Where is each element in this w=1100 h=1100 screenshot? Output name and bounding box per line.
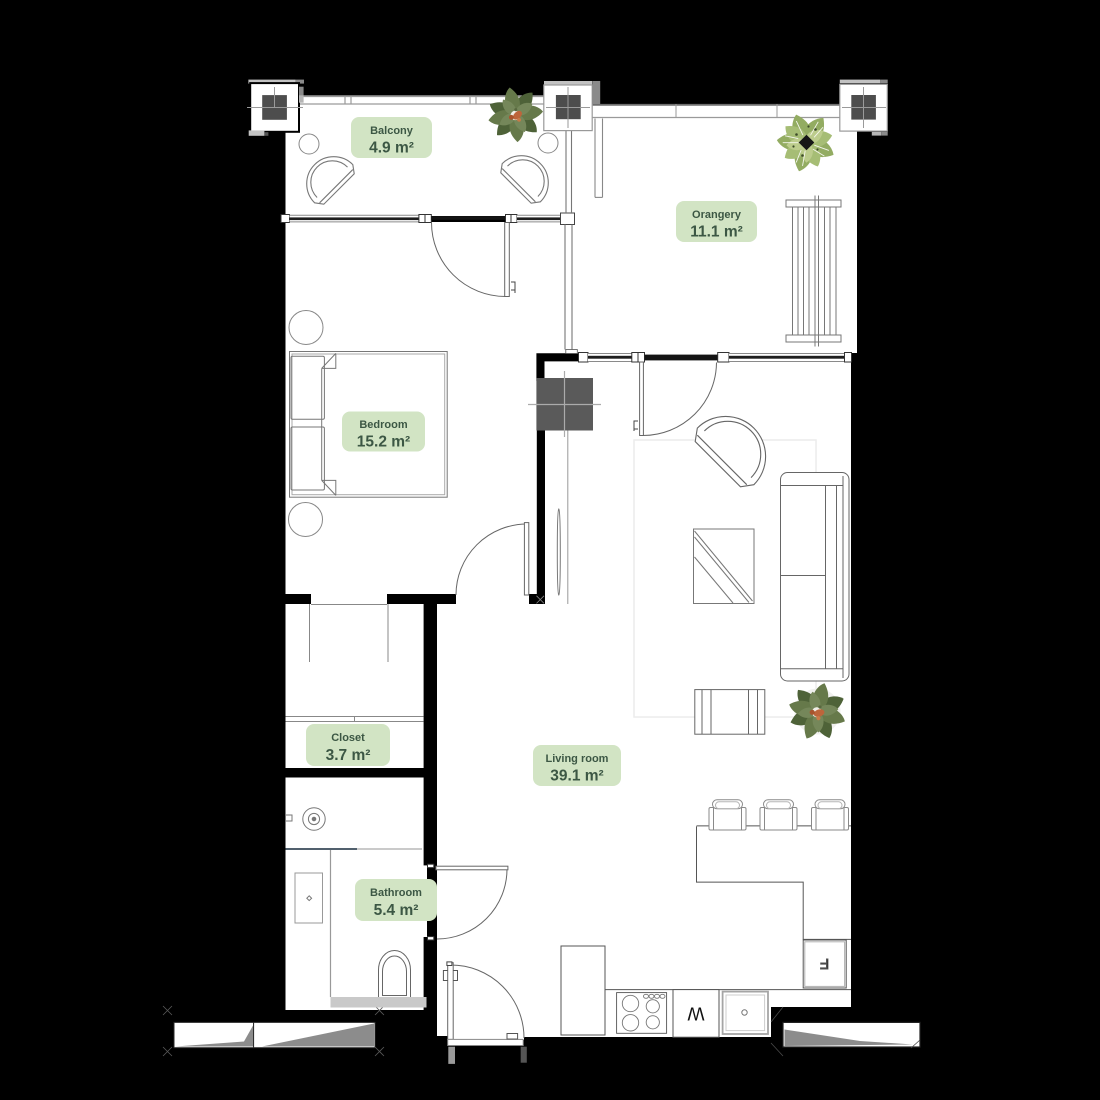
svg-text:Orangery: Orangery — [692, 209, 742, 221]
svg-text:F: F — [820, 955, 829, 972]
svg-text:Bedroom: Bedroom — [359, 419, 408, 431]
svg-text:Bathroom: Bathroom — [370, 887, 422, 899]
svg-text:4.9 m²: 4.9 m² — [369, 140, 414, 157]
svg-text:W: W — [688, 1004, 705, 1024]
svg-text:Living room: Living room — [546, 753, 609, 765]
svg-text:3.7 m²: 3.7 m² — [326, 747, 371, 764]
svg-text:Balcony: Balcony — [370, 125, 414, 137]
svg-text:Closet: Closet — [331, 732, 365, 744]
svg-text:5.4 m²: 5.4 m² — [374, 902, 419, 919]
svg-text:39.1 m²: 39.1 m² — [550, 768, 603, 785]
svg-text:11.1 m²: 11.1 m² — [690, 224, 743, 241]
svg-text:15.2 m²: 15.2 m² — [357, 434, 410, 451]
